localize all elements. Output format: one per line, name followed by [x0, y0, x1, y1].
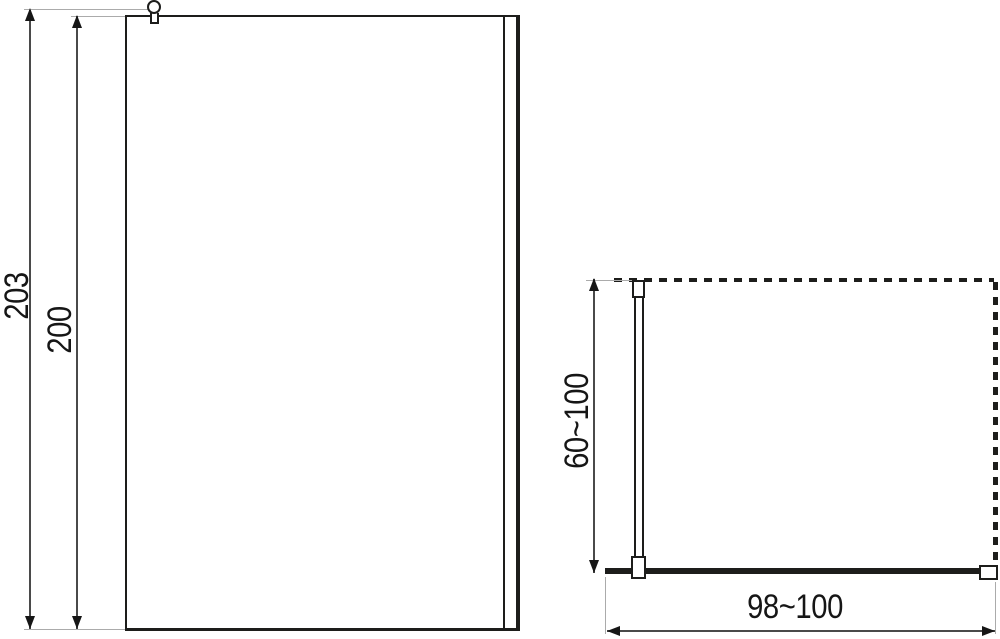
support-bar — [605, 568, 980, 574]
wall-profile-line — [503, 17, 505, 629]
extension-line-width-left — [605, 577, 606, 634]
dimension-line-panel-width — [607, 630, 995, 632]
arrowhead-down-icon — [25, 616, 35, 629]
extension-line-front-bottom — [24, 629, 125, 630]
dashed-enclosure-line-top — [614, 278, 994, 282]
bar-length-label: 60~100 — [560, 373, 594, 469]
glass-bracket — [631, 556, 646, 579]
total-height-label: 203 — [0, 272, 34, 320]
dashed-enclosure-line-right — [993, 282, 998, 562]
wall-bracket — [979, 565, 998, 580]
glass-height-label: 200 — [43, 306, 77, 354]
glass-panel-plan — [634, 297, 644, 559]
arrowhead-right-icon — [982, 626, 995, 636]
arrowhead-up-icon — [72, 15, 82, 28]
panel-width-label: 98~100 — [747, 590, 843, 624]
arrowhead-up-icon — [25, 8, 35, 21]
arrowhead-down-icon — [589, 560, 599, 573]
arrowhead-up-icon — [589, 278, 599, 291]
glass-panel-top-cap — [632, 280, 645, 298]
knob-stem-icon — [150, 13, 159, 24]
glass-panel-front — [125, 15, 520, 631]
knob-circle-icon — [147, 0, 161, 14]
extension-line-total-height-top — [24, 9, 149, 10]
arrowhead-down-icon — [72, 616, 82, 629]
dimension-drawing-canvas: 203 200 60~100 98~100 — [0, 0, 1000, 639]
extension-line-width-right — [995, 582, 996, 634]
arrowhead-left-icon — [607, 626, 620, 636]
